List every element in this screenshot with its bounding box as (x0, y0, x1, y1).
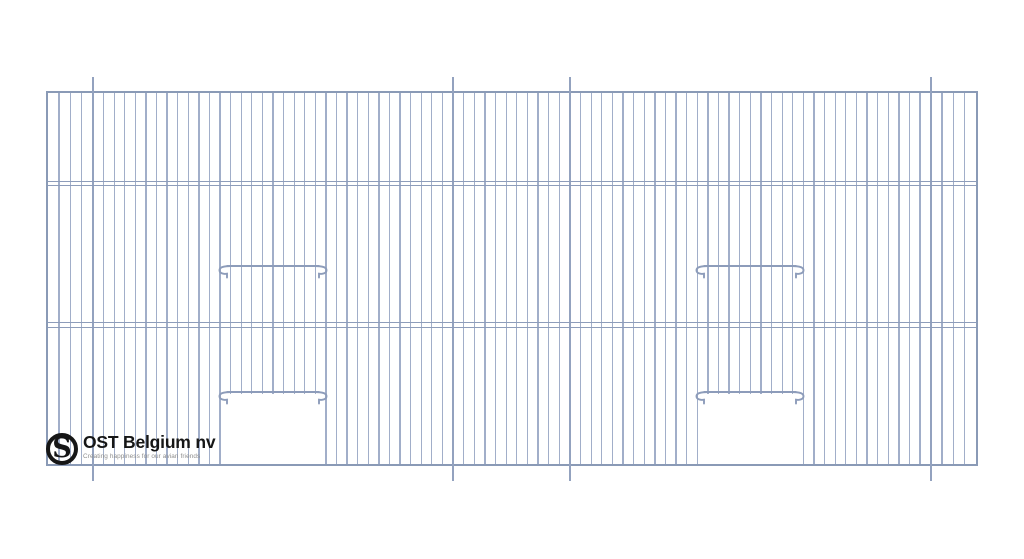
cage-wire (399, 93, 400, 465)
door-left-top-bar (214, 262, 332, 279)
cage-wire (241, 93, 242, 394)
cage-wire (103, 93, 104, 465)
door-bar-wire (697, 266, 804, 278)
cage-wire (718, 93, 719, 394)
cage-wire (548, 93, 549, 465)
door-right-top-bar (691, 262, 809, 279)
cage-wire (941, 93, 942, 465)
cage-wire (145, 93, 146, 465)
logo-texts: OST Belgium nv Creating happiness for ou… (83, 433, 215, 460)
cage-wire (357, 93, 358, 465)
cage-wire (124, 93, 125, 465)
cage-wire (58, 93, 59, 465)
cage-wire (527, 93, 528, 465)
cage-wire (919, 93, 920, 465)
cage-wire (283, 93, 284, 394)
cage-wire (410, 93, 411, 465)
cage-wire (188, 93, 189, 465)
cage-wire (506, 93, 507, 465)
cage-wire (750, 93, 751, 394)
cage-wire (909, 93, 910, 465)
cage-wire (665, 93, 666, 465)
cage-wire (633, 93, 634, 465)
cage-wire (135, 93, 136, 465)
cage-wire (601, 93, 602, 465)
cage-wire (336, 93, 337, 465)
cage-wire (813, 93, 814, 465)
cage-wire (792, 93, 793, 394)
cage-wire (856, 93, 857, 465)
cage-wire (251, 93, 252, 394)
logo-monogram-icon: S (46, 433, 78, 465)
cage-wire (421, 93, 422, 465)
cage-wire (262, 93, 263, 394)
cage-wire (782, 93, 783, 394)
door-bar-wire (219, 392, 326, 404)
cage-wire (389, 93, 390, 465)
drawing-canvas: S OST Belgium nv Creating happiness for … (0, 0, 1024, 559)
cage-wire (495, 93, 496, 465)
cage-wire (304, 93, 305, 394)
logo-monogram: S (52, 435, 72, 462)
cage-wire (771, 93, 772, 394)
cage-panel-frame (46, 91, 979, 467)
cage-wire (953, 93, 954, 465)
panel-seam-wire (930, 77, 932, 481)
door-left-bottom-bar (214, 388, 332, 405)
cage-wire (728, 93, 729, 394)
cage-wire (368, 93, 369, 465)
cage-wire (739, 93, 740, 394)
cage-wire (654, 93, 655, 465)
cage-wire (516, 93, 517, 465)
cage-wire (474, 93, 475, 465)
cage-wire (209, 93, 210, 465)
cage-wire (442, 93, 443, 465)
company-tagline: Creating happiness for our avian friends (83, 453, 215, 460)
cage-wire (177, 93, 178, 465)
cage-wire (580, 93, 581, 465)
cage-wire (230, 93, 231, 394)
cage-wire (964, 93, 965, 465)
cage-wire (484, 93, 485, 465)
cage-wire (644, 93, 645, 465)
cage-wire (707, 93, 708, 394)
panel-seam-wire (569, 77, 571, 481)
cage-wire (166, 93, 167, 465)
cage-wire (81, 93, 82, 465)
cage-wire (463, 93, 464, 465)
horizontal-divider-wire (48, 181, 977, 187)
cage-wire (70, 93, 71, 465)
company-name: OST Belgium nv (83, 433, 215, 451)
cage-wire (431, 93, 432, 465)
cage-wire (198, 93, 199, 465)
cage-wire (877, 93, 878, 465)
cage-wire (845, 93, 846, 465)
cage-wire (156, 93, 157, 465)
cage-wire (622, 93, 623, 465)
panel-seam-wire (92, 77, 94, 481)
horizontal-divider-wire (48, 322, 977, 328)
cage-wire (315, 93, 316, 394)
cage-wire (272, 93, 273, 394)
cage-wire (346, 93, 347, 465)
cage-wire (866, 93, 867, 465)
cage-wire (294, 93, 295, 394)
cage-wire (760, 93, 761, 394)
door-bar-wire (219, 266, 326, 278)
cage-wire (675, 93, 676, 465)
door-bar-wire (697, 392, 804, 404)
cage-wire (612, 93, 613, 465)
cage-wire (888, 93, 889, 465)
cage-wire (378, 93, 379, 465)
cage-wire (114, 93, 115, 465)
door-right-bottom-bar (691, 388, 809, 405)
cage-wire (686, 93, 687, 465)
cage-wire (591, 93, 592, 465)
cage-wire (537, 93, 538, 465)
cage-wire (898, 93, 899, 465)
panel-seam-wire (452, 77, 454, 481)
cage-wire (559, 93, 560, 465)
cage-wire (835, 93, 836, 465)
cage-wire (824, 93, 825, 465)
